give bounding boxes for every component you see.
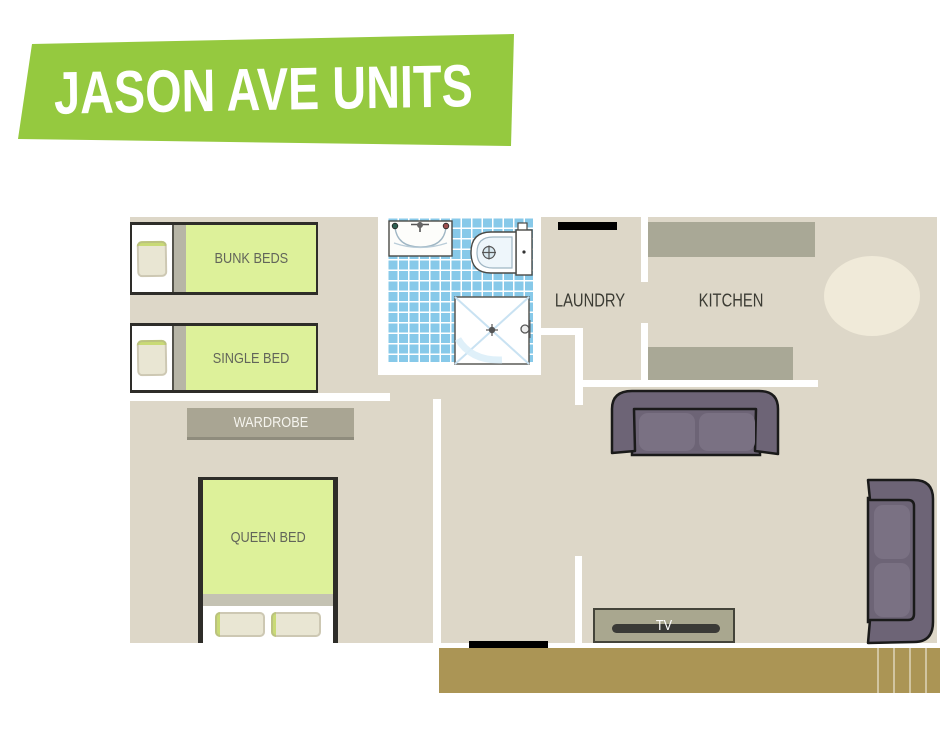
wall-laundry-kitchen-upper bbox=[641, 217, 648, 282]
wardrobe-label: WARDROBE bbox=[233, 414, 308, 431]
wall-living-lower bbox=[575, 556, 582, 643]
kitchen-counter-top bbox=[648, 222, 815, 257]
pillow-icon bbox=[215, 612, 265, 637]
wall-bedroom-divider bbox=[130, 393, 390, 401]
single-bed-mattress: SINGLE BED bbox=[186, 326, 316, 390]
single-bed-label: SINGLE BED bbox=[213, 350, 290, 367]
floor-plan: BUNK BEDS SINGLE BED WARDROBE bbox=[130, 217, 937, 643]
single-bed-head bbox=[132, 326, 172, 390]
toilet-icon bbox=[471, 223, 532, 275]
kitchen-label: KITCHEN bbox=[699, 291, 764, 312]
floor-plan-page: JASON AVE UNITS BUNK BEDS SINGLE BED bbox=[0, 0, 952, 731]
wall-hallway bbox=[433, 399, 441, 643]
pillow-icon bbox=[137, 240, 168, 277]
bunk-bed: BUNK BEDS bbox=[130, 222, 318, 295]
bathroom-fixtures bbox=[378, 217, 541, 375]
queen-bed-head bbox=[203, 606, 333, 643]
queen-bed-frame-band bbox=[203, 594, 333, 606]
wall-laundry-side bbox=[575, 328, 583, 405]
sofa-icon bbox=[606, 385, 785, 465]
sink-icon bbox=[389, 221, 452, 256]
sofa-icon bbox=[858, 472, 938, 648]
queen-bed-label: QUEEN BED bbox=[230, 529, 305, 546]
round-table-icon bbox=[824, 256, 920, 336]
deck-plank-line bbox=[925, 648, 927, 693]
bed-frame-divider bbox=[172, 326, 186, 390]
pillow-icon bbox=[271, 612, 321, 637]
kitchen-counter-bottom bbox=[648, 347, 793, 380]
shower-icon bbox=[455, 297, 530, 364]
queen-bed: QUEEN BED bbox=[198, 477, 338, 643]
laundry-label: LAUNDRY bbox=[555, 291, 625, 312]
deck bbox=[439, 648, 940, 693]
bunk-bed-head bbox=[132, 225, 172, 292]
deck-plank-line bbox=[909, 648, 911, 693]
wardrobe: WARDROBE bbox=[187, 408, 354, 440]
bunk-bed-mattress: BUNK BEDS bbox=[186, 225, 316, 292]
deck-plank-line bbox=[877, 648, 879, 693]
bunk-beds-label: BUNK BEDS bbox=[214, 250, 288, 267]
wall-laundry-kitchen-lower bbox=[641, 323, 648, 383]
tv-label: TV bbox=[605, 610, 722, 641]
pillow-icon bbox=[137, 340, 168, 377]
tv-unit: TV bbox=[593, 608, 735, 643]
page-title: JASON AVE UNITS bbox=[53, 51, 472, 127]
title-banner: JASON AVE UNITS bbox=[10, 30, 516, 148]
laundry-appliance bbox=[558, 222, 617, 230]
bed-frame-divider bbox=[172, 225, 186, 292]
deck-plank-line bbox=[893, 648, 895, 693]
bathroom bbox=[378, 217, 541, 375]
single-bed: SINGLE BED bbox=[130, 323, 318, 393]
queen-bed-mattress: QUEEN BED bbox=[203, 480, 333, 594]
